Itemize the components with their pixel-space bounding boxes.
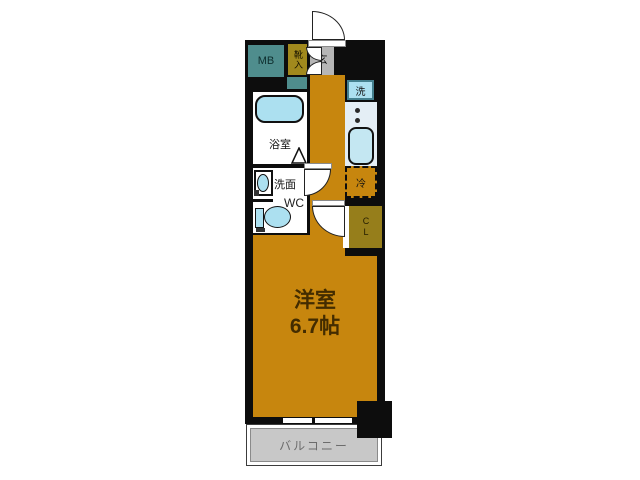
refrigerator-label: 冷 (356, 175, 366, 190)
wc-label: WC (284, 196, 308, 210)
kitchen-sink-icon (348, 127, 374, 165)
shoe-cabinet: 靴入 (288, 44, 307, 75)
toilet-tank-icon (255, 208, 264, 228)
window-mullion (312, 417, 315, 424)
stove-burner-icon (355, 118, 360, 123)
bathtub-icon (255, 95, 304, 123)
structural-pillar (357, 401, 392, 438)
toilet-base-icon (256, 228, 265, 232)
bathroom-wall (253, 164, 307, 168)
main-room-name: 洋室 (253, 288, 377, 314)
entrance-threshold (308, 40, 346, 47)
washing-machine-space: 洗 (345, 78, 376, 102)
toilet-bowl-icon (264, 206, 291, 228)
meter-box-label: MB (258, 55, 275, 67)
entrance-door-swing-icon (312, 11, 345, 40)
washing-machine-label: 洗 (347, 80, 374, 100)
refrigerator-space: 冷 (345, 166, 377, 198)
shoe-cabinet-label: 靴入 (293, 50, 302, 70)
closet-wall (345, 248, 382, 256)
window-opening (283, 418, 352, 423)
utility-box (287, 77, 307, 89)
main-room-size: 6.7帖 (253, 314, 377, 340)
floor-plan: MB 靴入 玄 洗 冷 CL 浴室 洗面 WC 洋室 (0, 0, 640, 480)
main-room-label: 洋室 6.7帖 (253, 288, 377, 340)
meter-box: MB (248, 45, 284, 77)
washbasin-tap-icon (254, 190, 259, 196)
closet-label: CL (361, 216, 370, 238)
stove-burner-icon (355, 108, 360, 113)
washbasin-label: 洗面 (274, 176, 306, 192)
closet: CL (349, 206, 382, 248)
wc-divider-wall (253, 199, 273, 202)
